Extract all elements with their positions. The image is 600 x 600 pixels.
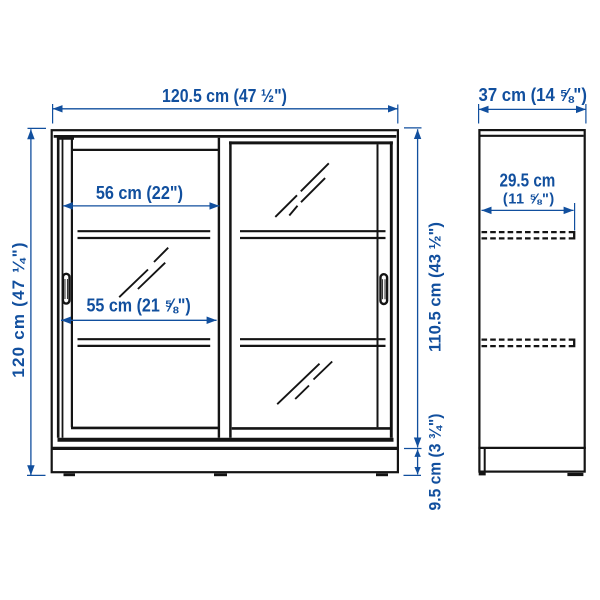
svg-text:9.5 cm (3 ¾"): 9.5 cm (3 ¾"): [426, 414, 445, 511]
svg-text:56 cm (22"): 56 cm (22"): [96, 182, 183, 203]
svg-text:120.5 cm (47 ½"): 120.5 cm (47 ½"): [162, 85, 287, 106]
svg-text:55 cm (21 ⅝"): 55 cm (21 ⅝"): [86, 294, 190, 315]
svg-text:120 cm (47 ¼"): 120 cm (47 ¼"): [9, 241, 28, 377]
svg-text:29.5 cm: 29.5 cm: [500, 170, 556, 191]
svg-text:110.5 cm (43 ½"): 110.5 cm (43 ½"): [425, 222, 444, 352]
svg-text:37 cm (14 ⅝"): 37 cm (14 ⅝"): [479, 84, 587, 105]
svg-text:(11 ⅝"): (11 ⅝"): [503, 192, 555, 208]
